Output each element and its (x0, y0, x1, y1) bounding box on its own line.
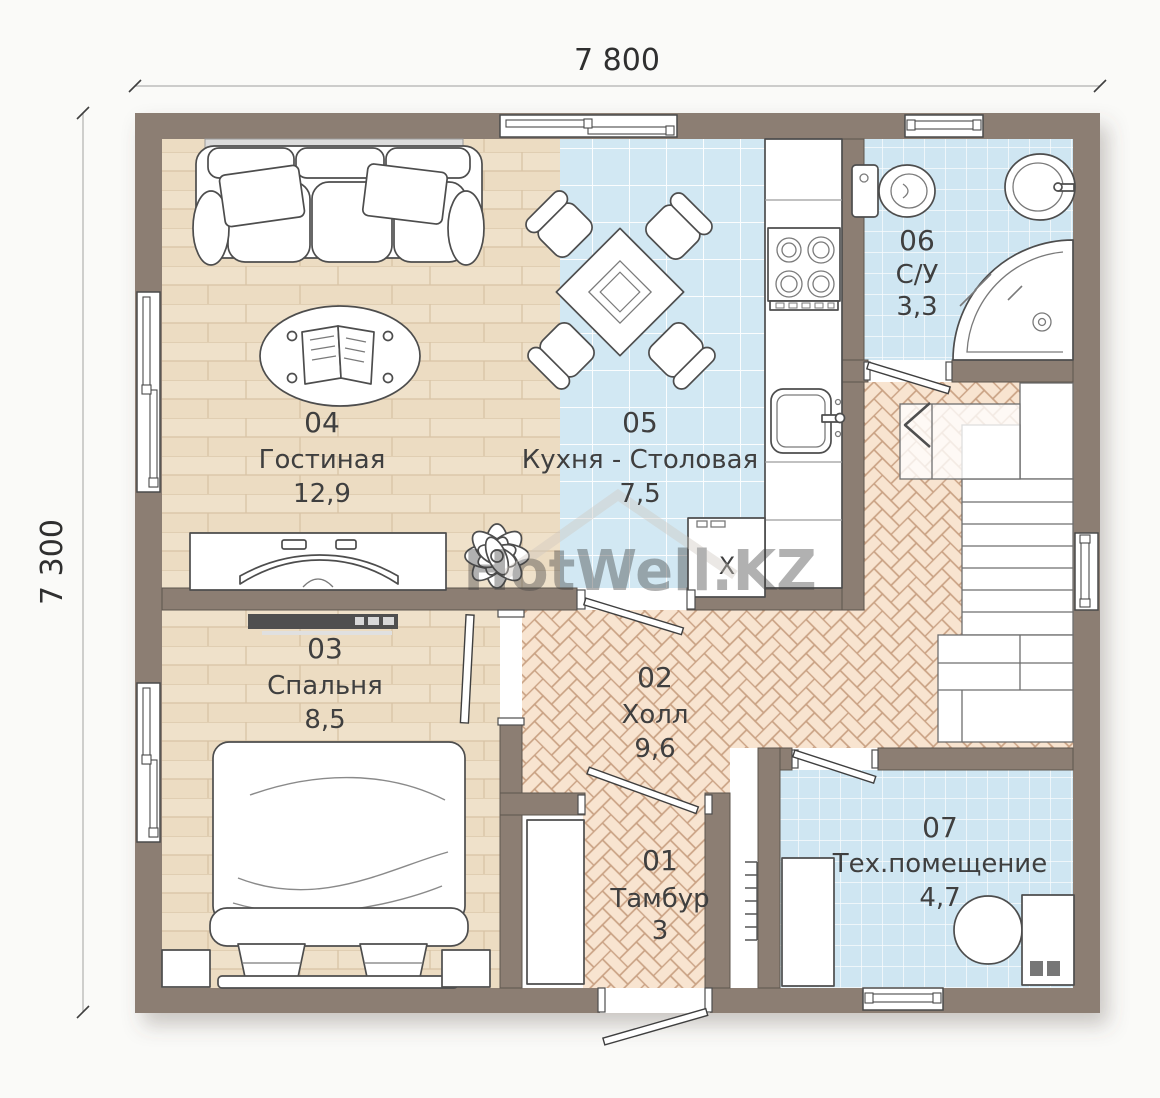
hall-floor-right (705, 610, 864, 748)
room-label-bathroom: 06 С/У 3,3 (896, 224, 939, 322)
svg-text:С/У: С/У (896, 260, 939, 290)
wall-tech-top (878, 748, 1073, 770)
dimension-left-label: 7 300 (35, 519, 70, 605)
svg-text:07: 07 (922, 811, 958, 844)
sofa (193, 139, 484, 265)
wall-bath-bottom (952, 360, 1073, 382)
toilet (852, 165, 935, 217)
window (1075, 533, 1098, 610)
entrance-door (603, 1009, 708, 1045)
entrance-opening (600, 988, 710, 1013)
wall-bedroom-hall (500, 725, 522, 988)
svg-text:3: 3 (652, 916, 669, 946)
svg-text:05: 05 (622, 406, 658, 439)
bedside-table-left (162, 950, 210, 987)
wardrobe (527, 820, 584, 984)
svg-text:02: 02 (637, 661, 673, 694)
svg-text:Тамбур: Тамбур (609, 884, 709, 914)
bedside-table-right (442, 950, 490, 987)
window (137, 683, 160, 842)
water-heater (954, 896, 1022, 964)
book-icon (302, 326, 374, 384)
dimension-left: 7 300 (35, 107, 89, 1018)
dimension-top-label: 7 800 (574, 43, 660, 78)
svg-text:Холл: Холл (622, 700, 689, 730)
tech-counter (782, 858, 834, 986)
svg-text:06: 06 (899, 224, 935, 257)
svg-text:Кухня - Столовая: Кухня - Столовая (522, 445, 758, 475)
window (905, 115, 983, 137)
washbasin (1005, 154, 1075, 220)
sofa-pillow-left (219, 165, 305, 228)
wall-vestibule-top (500, 793, 585, 815)
svg-text:03: 03 (307, 632, 343, 665)
coffee-table (260, 306, 420, 406)
svg-text:Спальня: Спальня (267, 671, 383, 701)
kitchen-counter (765, 139, 845, 588)
svg-text:4,7: 4,7 (919, 883, 960, 913)
hall-floor-strip (705, 748, 730, 793)
sofa-pillow-right (362, 163, 448, 224)
tv-stand (190, 533, 446, 590)
dimension-top: 7 800 (129, 43, 1106, 92)
window (500, 115, 677, 137)
boiler (1022, 895, 1074, 985)
svg-text:7,5: 7,5 (619, 479, 660, 509)
floor-plan-page: X (0, 0, 1160, 1098)
window (863, 988, 943, 1010)
stove (768, 228, 840, 310)
svg-text:01: 01 (642, 844, 678, 877)
svg-text:9,6: 9,6 (634, 734, 675, 764)
svg-text:8,5: 8,5 (304, 705, 345, 735)
svg-text:3,3: 3,3 (896, 292, 937, 322)
watermark-text: HotWell.KZ (463, 539, 817, 604)
svg-text:04: 04 (304, 406, 340, 439)
stair-landing (900, 404, 1020, 479)
svg-text:12,9: 12,9 (293, 479, 351, 509)
wall-tech-left (758, 748, 780, 988)
floor-plan-canvas: X (0, 0, 1160, 1098)
window (137, 292, 160, 492)
svg-text:Тех.помещение: Тех.помещение (832, 849, 1047, 879)
svg-text:Гостиная: Гостиная (259, 445, 386, 475)
